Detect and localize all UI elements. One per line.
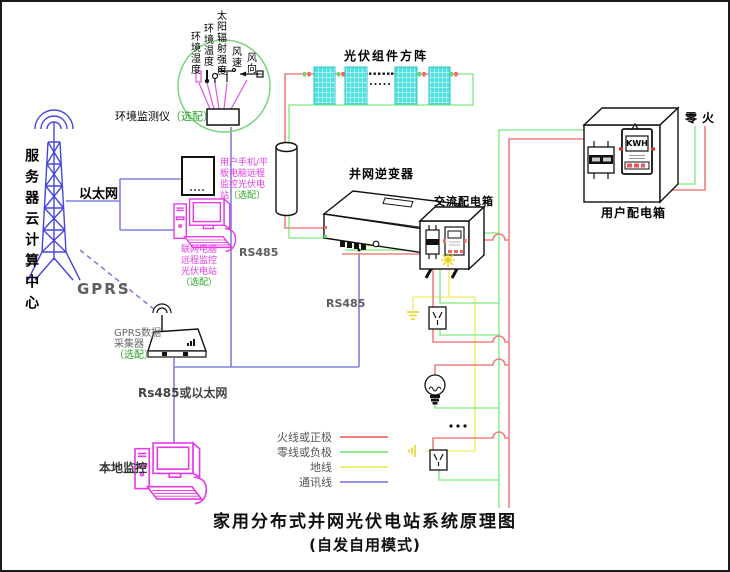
box-feet — [426, 269, 457, 278]
gprs-label: GPRS — [77, 281, 131, 298]
user-breaker — [588, 141, 614, 179]
neutral-live-label: 零火 — [685, 112, 719, 126]
legend: 火线或正极 零线或负极 地线 通讯线 — [240, 430, 388, 490]
pc-note-line: 远程监控 — [181, 256, 217, 267]
pv-panel — [429, 67, 450, 104]
kwh-meter-text: KWH — [626, 139, 648, 148]
ground-star-icon — [441, 253, 455, 267]
ac-meter — [443, 227, 467, 255]
rs485-or-ethernet-label: Rs485或以太网 — [138, 387, 227, 401]
inverter-label: 并网逆变器 — [349, 168, 414, 182]
user-distribution-box — [584, 108, 678, 202]
optional-tag: 〔选配〕 — [229, 191, 265, 201]
sensor-fan-lines — [199, 80, 247, 109]
kwh-meter — [619, 124, 655, 174]
ac-distribution-box — [420, 207, 484, 278]
remote-computer — [174, 199, 236, 251]
optional-tag: （选配） — [114, 350, 161, 361]
schematic-canvas: 服务器云计算中心 以太网 GPRS 用户手机/平 板电脑远程 监控光伏电 站〔选… — [0, 0, 730, 572]
local-monitor-label: 本地监控 — [99, 462, 147, 476]
pc-note: 联网电脑 远程监控 光伏电站 （选配） — [181, 245, 217, 289]
socket-1 — [429, 307, 446, 329]
pc-note-line: 光伏电站 — [181, 267, 217, 278]
legend-line-neutral — [340, 451, 388, 453]
household-loads — [425, 307, 467, 470]
sensor-label-radiation: 太阳辐射强度 — [214, 10, 226, 76]
socket-2 — [430, 450, 447, 470]
pc-note-line: 联网电脑 — [181, 245, 217, 256]
rs485-right-label: RS485 — [326, 298, 365, 311]
legend-line-live — [340, 436, 388, 438]
dc-isolator-cylinder — [276, 143, 297, 216]
legend-row-comm: 通讯线 — [240, 475, 388, 489]
diagram-title: 家用分布式并网光伏电站系统原理图 — [2, 513, 728, 533]
ground-symbols — [407, 312, 419, 457]
collector-note-line: 采集器 — [114, 339, 161, 350]
sensor-label-wind-direction: 风向 — [244, 52, 256, 74]
tablet-note-line: 监控光伏电 — [220, 180, 268, 191]
tablet-note-line: 站 — [220, 191, 229, 201]
pv-panel — [345, 67, 367, 104]
legend-label: 通讯线 — [240, 474, 332, 490]
legend-label: 火线或正极 — [240, 429, 332, 445]
tablet-device — [182, 157, 214, 195]
ethernet-label: 以太网 — [79, 188, 118, 203]
ac-breaker — [426, 225, 439, 259]
light-bulb — [425, 375, 445, 405]
legend-line-ground — [340, 466, 388, 468]
rs485-left-label: RS485 — [239, 247, 278, 260]
tablet-note-line: 用户手机/平 — [220, 158, 268, 169]
optional-tag: （选配） — [181, 278, 217, 289]
legend-row-ground: 地线 — [240, 460, 388, 474]
collector-note: GPRS数据 采集器 （选配） — [114, 328, 161, 361]
ac-box-label: 交流配电箱 — [434, 196, 494, 209]
loads-ellipsis — [449, 424, 466, 427]
legend-label: 地线 — [240, 459, 332, 475]
legend-line-comm — [340, 481, 388, 483]
sensor-label-humidity: 环境湿度 — [188, 31, 200, 75]
pv-panel — [395, 67, 417, 104]
ground-wires — [348, 246, 475, 451]
sensor-label-temperature: 环境温度 — [201, 23, 213, 67]
optional-tag: （选配） — [170, 110, 214, 123]
pv-array-label: 光伏组件方阵 — [344, 50, 428, 64]
legend-row-neutral: 零线或负极 — [240, 445, 388, 459]
sensor-label-wind-speed: 风速 — [229, 46, 241, 68]
pv-array — [303, 67, 458, 104]
legend-label: 零线或负极 — [240, 444, 332, 460]
thermometer-icon — [205, 70, 209, 83]
diagram-subtitle: (自发自用模式) — [2, 537, 728, 554]
legend-row-live: 火线或正极 — [240, 430, 388, 444]
user-box-label: 用户配电箱 — [601, 207, 666, 221]
server-center-label: 服务器云计算中心 — [23, 148, 39, 316]
collector-note-line: GPRS数据 — [114, 328, 161, 339]
inverter-port — [373, 241, 379, 247]
pv-panel — [314, 67, 335, 104]
tablet-note-line: 板电脑远程 — [220, 169, 268, 180]
tablet-note: 用户手机/平 板电脑远程 监控光伏电 站〔选配〕 — [220, 158, 268, 202]
env-monitor-label: 环境监测仪（选配） — [115, 111, 214, 124]
env-monitor-name: 环境监测仪 — [115, 110, 170, 123]
